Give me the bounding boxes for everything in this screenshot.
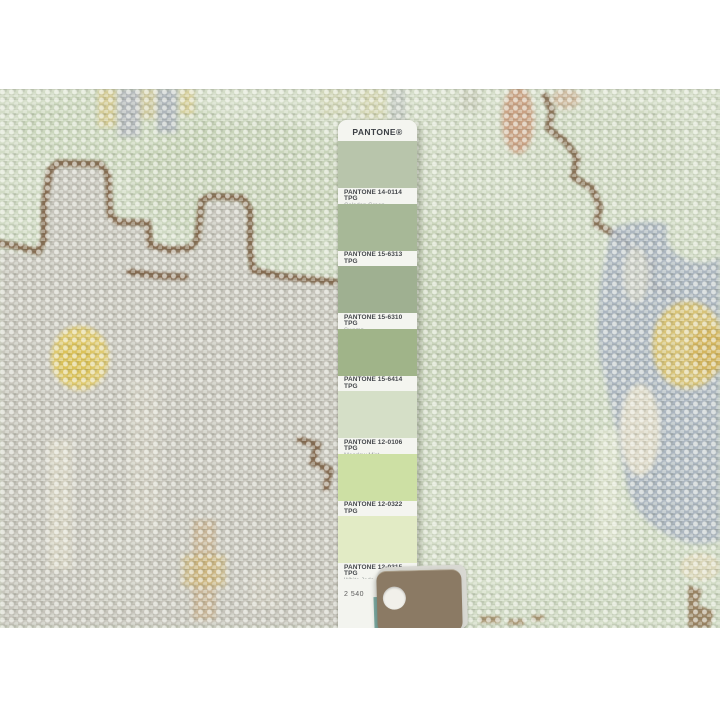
fan-deck-back-cover xyxy=(376,569,463,628)
pantone-swatch-label: PANTONE 15-6313 TPG Laurel Green xyxy=(338,251,417,267)
pantone-swatch: PANTONE 15-6313 TPG Laurel Green xyxy=(338,204,417,267)
pantone-swatch-color xyxy=(338,141,417,188)
pantone-swatch-code: PANTONE 15-6313 TPG xyxy=(344,252,417,266)
pantone-swatch: PANTONE 15-6414 TPG Reseda xyxy=(338,329,417,392)
pantone-swatch-color xyxy=(338,329,417,376)
pantone-swatch-code: PANTONE 15-6310 TPG xyxy=(344,315,417,329)
pantone-swatch: PANTONE 14-0114 TPG Celadon Green xyxy=(338,141,417,204)
pantone-swatch-color xyxy=(338,454,417,501)
pantone-fan-deck: PANTONE® PANTONE 14-0114 TPG Celadon Gre… xyxy=(338,120,417,628)
pantone-swatch-label: PANTONE 14-0114 TPG Celadon Green xyxy=(338,188,417,204)
pantone-brand-text: PANTONE® xyxy=(352,127,402,137)
fan-deck-rivet-hole xyxy=(383,586,407,610)
pantone-swatch: PANTONE 12-0106 TPG Meadow Mist xyxy=(338,391,417,454)
pantone-swatch-label: PANTONE 12-0106 TPG Meadow Mist xyxy=(338,438,417,454)
pantone-swatch-code: PANTONE 14-0114 TPG xyxy=(344,190,417,204)
pantone-swatch: PANTONE 12-0322 TPG Butterfly xyxy=(338,454,417,517)
pantone-swatch-label: PANTONE 15-6414 TPG Reseda xyxy=(338,376,417,392)
pantone-swatch-list: PANTONE 14-0114 TPG Celadon Green PANTON… xyxy=(338,141,417,579)
pantone-swatch: PANTONE 15-6310 TPG Swamp xyxy=(338,266,417,329)
pantone-swatch-color xyxy=(338,204,417,251)
pantone-logo: PANTONE® xyxy=(338,120,417,141)
pantone-swatch-code: PANTONE 15-6414 TPG xyxy=(344,377,417,391)
pantone-page-number: 2 540 xyxy=(344,591,364,598)
pantone-swatch-color xyxy=(338,391,417,438)
rug-photo: PANTONE® PANTONE 14-0114 TPG Celadon Gre… xyxy=(0,89,720,628)
pantone-swatch-label: PANTONE 15-6310 TPG Swamp xyxy=(338,313,417,329)
pantone-swatch-color xyxy=(338,516,417,563)
pantone-swatch-code: PANTONE 12-0322 TPG xyxy=(344,502,417,516)
pantone-swatch-code: PANTONE 12-0106 TPG xyxy=(344,440,417,454)
pantone-swatch-label: PANTONE 12-0322 TPG Butterfly xyxy=(338,501,417,517)
pantone-swatch-color xyxy=(338,266,417,313)
